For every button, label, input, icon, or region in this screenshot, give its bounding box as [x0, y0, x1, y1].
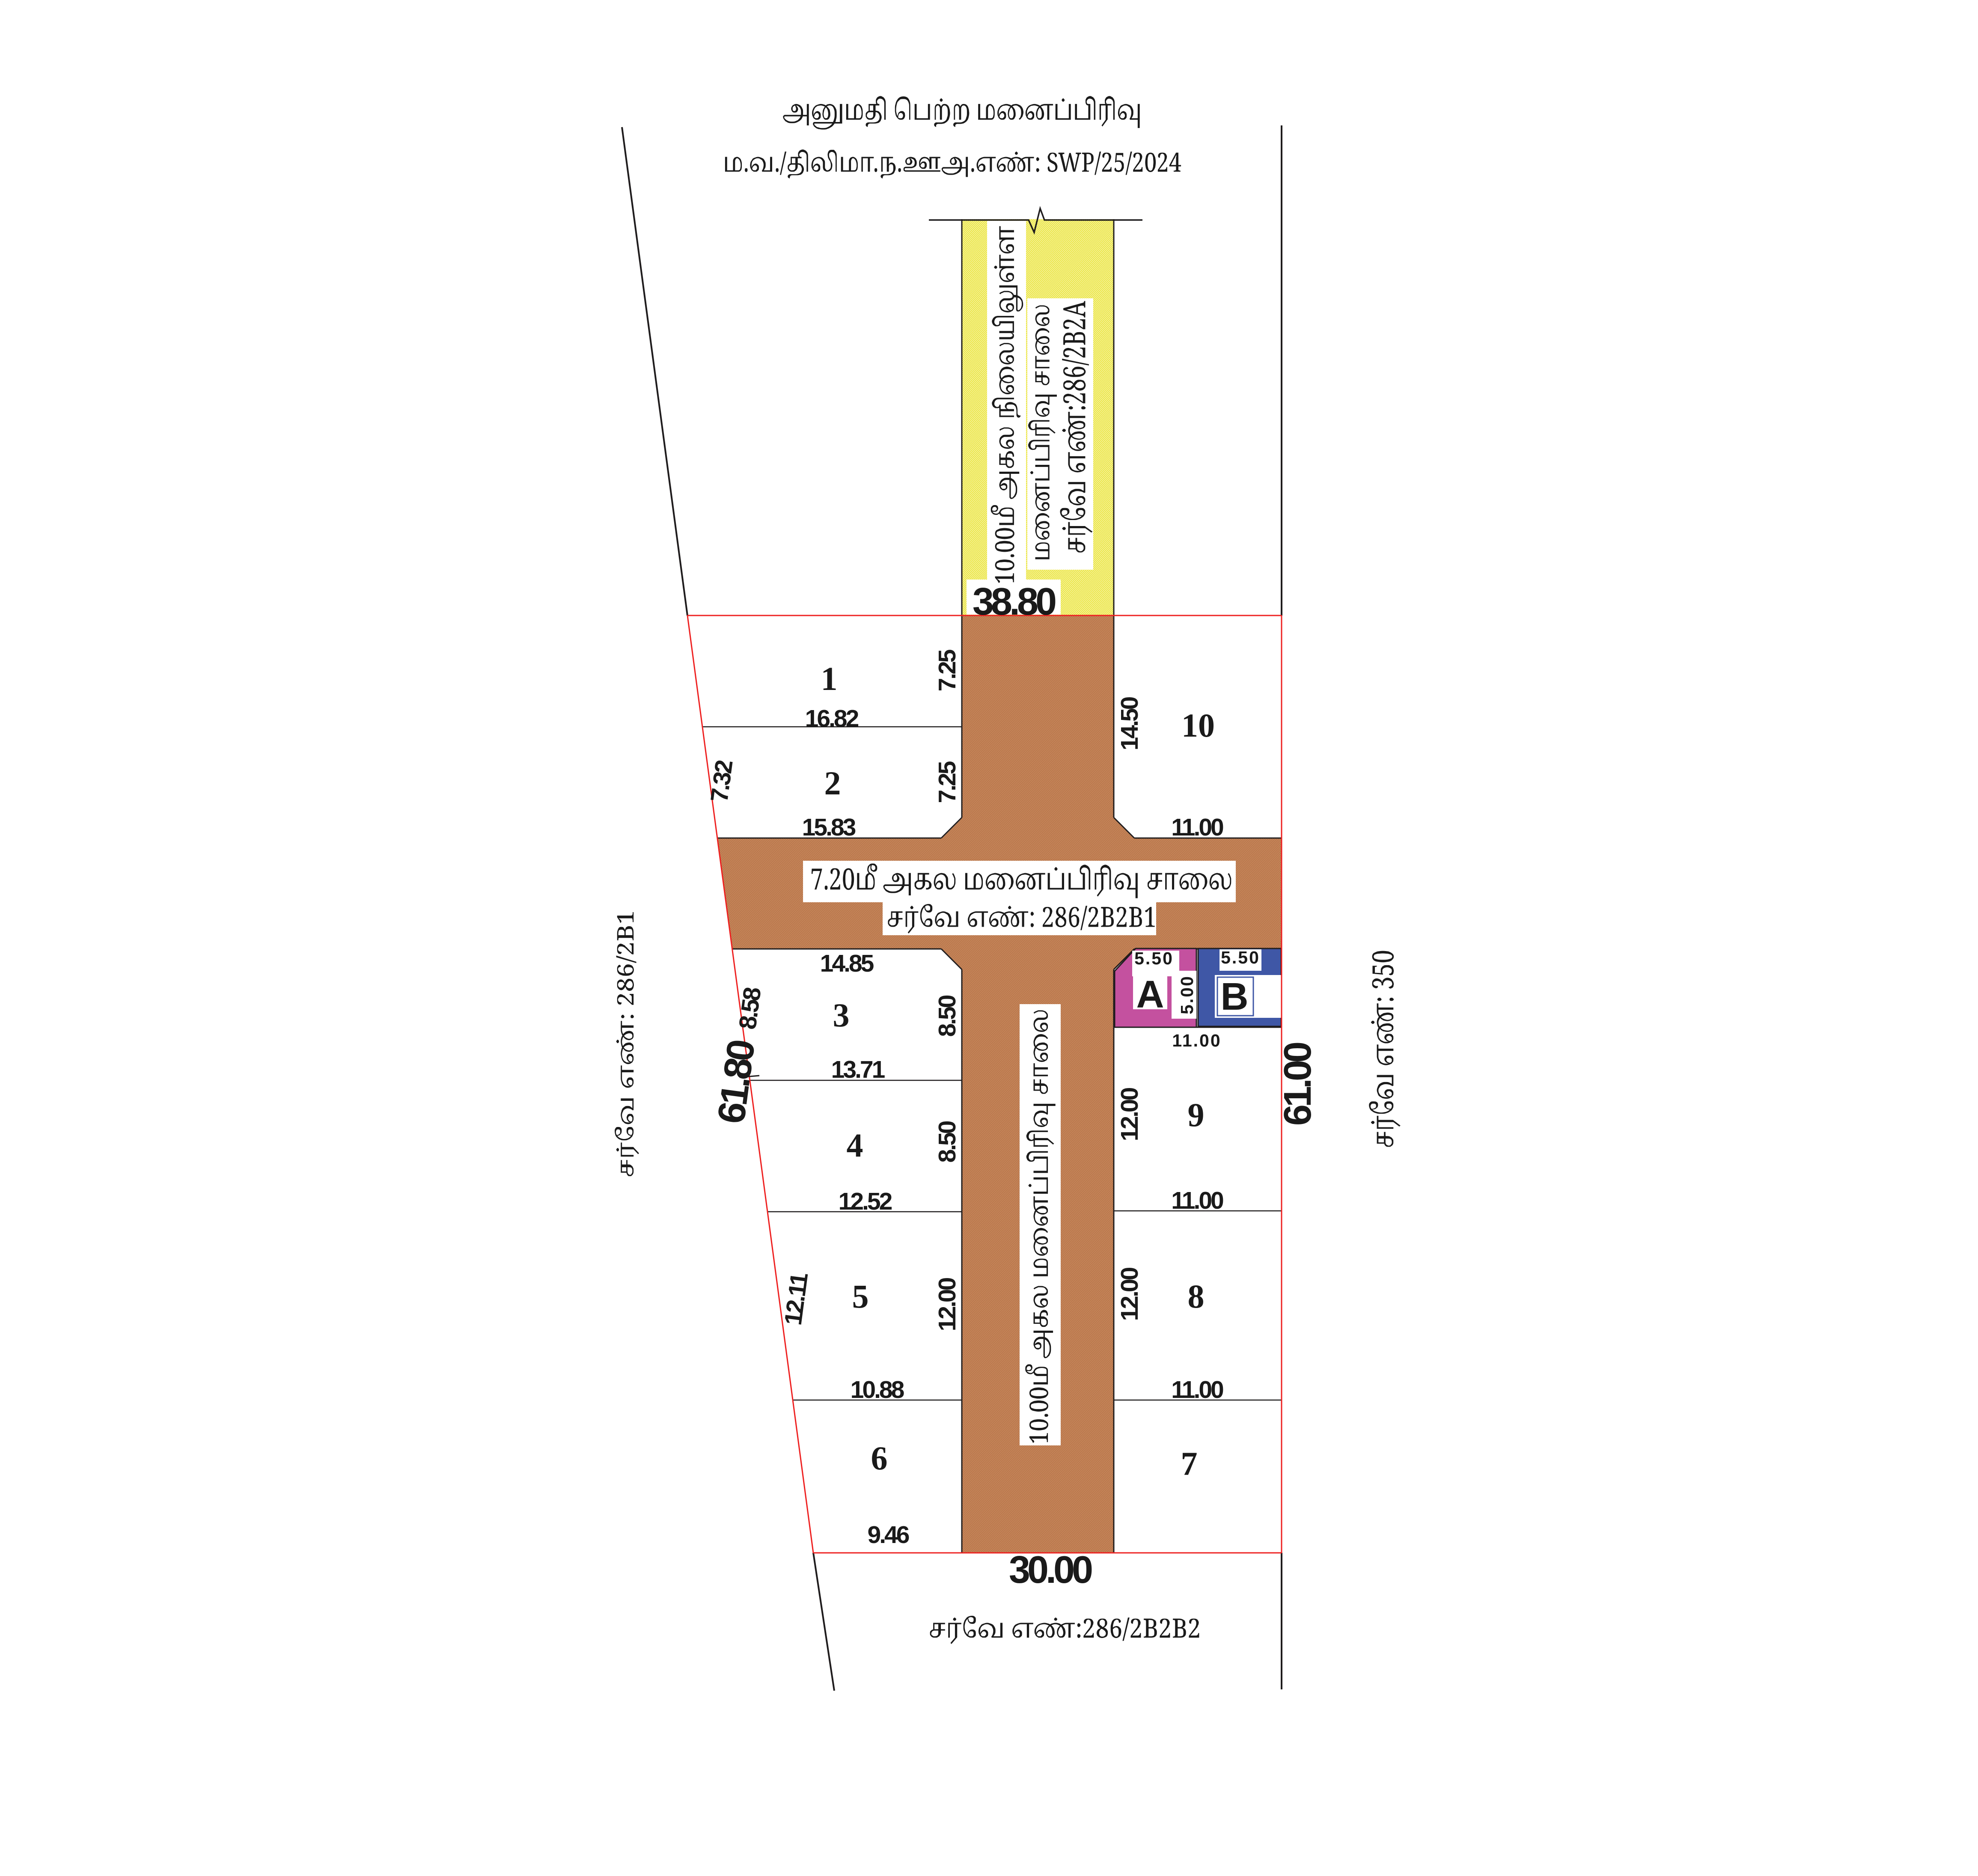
svg-text:9.46: 9.46 — [868, 1521, 909, 1549]
svg-text:8.58: 8.58 — [734, 986, 766, 1031]
svg-text:7.25: 7.25 — [934, 649, 961, 691]
svg-text:3: 3 — [833, 996, 850, 1034]
svg-text:5.50: 5.50 — [1134, 948, 1174, 968]
svg-text:7.32: 7.32 — [705, 759, 738, 804]
svg-text:5: 5 — [852, 1278, 869, 1315]
svg-text:8: 8 — [1188, 1278, 1205, 1315]
svg-text:14.85: 14.85 — [820, 950, 874, 977]
svg-text:9: 9 — [1188, 1096, 1205, 1133]
svg-text:12.00: 12.00 — [934, 1278, 961, 1331]
svg-text:1: 1 — [821, 660, 838, 697]
svg-text:8.50: 8.50 — [934, 1121, 961, 1162]
svg-text:2: 2 — [824, 764, 841, 802]
svg-text:15.83: 15.83 — [802, 814, 856, 841]
svg-text:61.00: 61.00 — [1276, 1043, 1319, 1126]
svg-text:13.71: 13.71 — [831, 1056, 885, 1083]
svg-text:11.00: 11.00 — [1171, 1187, 1223, 1214]
svg-text:11.00: 11.00 — [1171, 814, 1223, 841]
svg-text:10.88: 10.88 — [851, 1376, 904, 1403]
svg-text:10: 10 — [1181, 707, 1215, 744]
svg-text:11.00: 11.00 — [1171, 1376, 1223, 1403]
svg-text:12.52: 12.52 — [839, 1188, 892, 1215]
svg-text:5.50: 5.50 — [1221, 948, 1260, 967]
svg-text:6: 6 — [871, 1439, 888, 1477]
svg-text:B: B — [1221, 975, 1249, 1018]
svg-text:38.80: 38.80 — [973, 580, 1056, 623]
svg-text:7.25: 7.25 — [934, 761, 961, 803]
svg-text:14.50: 14.50 — [1116, 697, 1143, 750]
svg-text:5.00: 5.00 — [1177, 975, 1197, 1014]
svg-text:4: 4 — [847, 1127, 863, 1164]
svg-text:12.00: 12.00 — [1116, 1088, 1143, 1141]
svg-text:30.00: 30.00 — [1009, 1549, 1092, 1591]
svg-text:16.82: 16.82 — [805, 705, 859, 732]
svg-text:A: A — [1136, 973, 1164, 1016]
svg-text:7: 7 — [1181, 1445, 1198, 1482]
svg-text:8.50: 8.50 — [934, 995, 961, 1037]
svg-text:11.00: 11.00 — [1172, 1031, 1221, 1050]
svg-text:12.00: 12.00 — [1116, 1267, 1143, 1321]
